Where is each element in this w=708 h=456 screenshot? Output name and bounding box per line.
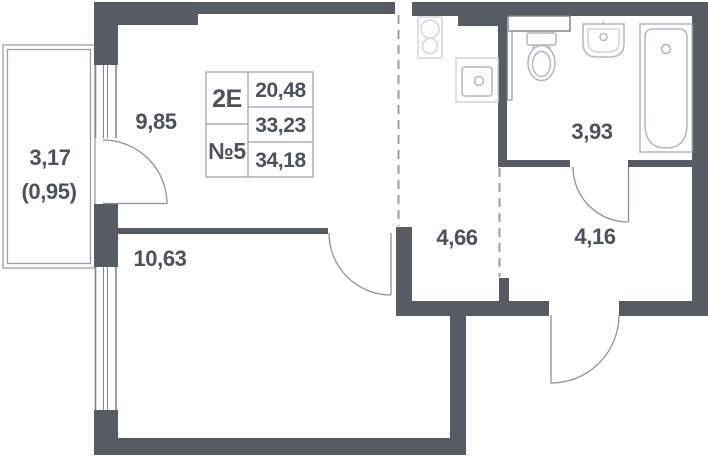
wall-top-left <box>94 2 395 14</box>
door-arc <box>573 167 628 222</box>
door-arc <box>103 140 167 204</box>
stove-icon <box>418 17 442 58</box>
door-arc <box>329 233 391 295</box>
bedroom-door <box>329 233 391 295</box>
wall-corridor-bottom <box>396 301 549 316</box>
wall-bedroom-right <box>450 301 466 438</box>
bathroom-door <box>573 167 629 222</box>
area-label-balcony-reduced: (0,95) <box>21 179 76 204</box>
entrance-door <box>551 315 619 383</box>
toilet-icon <box>527 33 556 81</box>
wall-corridor-vertical <box>396 227 412 302</box>
basin-drain <box>600 34 607 41</box>
wall-room-partition <box>118 228 328 234</box>
area-label-bathroom: 3,93 <box>571 119 612 144</box>
bathroom-liner-wall <box>508 31 513 100</box>
balcony-window <box>96 65 117 138</box>
unit-living-area: 20,48 <box>255 79 306 102</box>
unit-area-main: 33,23 <box>255 114 306 137</box>
tub-drain <box>662 45 671 54</box>
wall-bathroom-bottom-right <box>628 160 692 167</box>
kitchen-sink-icon <box>456 58 498 102</box>
wall-left-block-top <box>94 2 118 65</box>
wall-left-block-bottom <box>94 410 118 455</box>
floor-plan: 2Е №5 20,48 33,23 34,18 9,85 3,17 (0,95)… <box>0 0 708 456</box>
walls <box>94 2 708 455</box>
wall-top-kitchen-step <box>458 13 498 26</box>
area-label-bedroom: 10,63 <box>133 246 186 271</box>
sink-drain <box>475 77 484 86</box>
wall-bottom <box>94 438 466 455</box>
wall-bathroom-left <box>498 14 507 167</box>
area-label-living-kitchen: 9,85 <box>135 109 176 134</box>
wall-top-right <box>412 2 708 16</box>
unit-info-table: 2Е №5 20,48 33,23 34,18 <box>206 72 313 177</box>
wall-bathroom-bottom-left <box>507 160 570 167</box>
vent-shaft <box>508 16 570 31</box>
stove-burner <box>423 39 438 54</box>
area-label-hallway: 4,16 <box>574 224 615 249</box>
unit-type-label: 2Е <box>212 85 242 113</box>
unit-area-total: 34,18 <box>255 149 306 172</box>
bedroom-window <box>96 267 117 410</box>
wall-zone-stub <box>499 278 509 302</box>
bathtub-icon <box>640 24 692 152</box>
unit-number-label: №5 <box>208 138 246 164</box>
area-label-corridor: 4,66 <box>436 225 477 250</box>
toilet-bowl-inner <box>533 52 551 77</box>
toilet-tank <box>527 33 556 45</box>
wall-top-ledge <box>118 13 198 25</box>
door-arc <box>551 315 619 383</box>
fixtures <box>418 17 692 152</box>
wall-right <box>692 14 708 316</box>
washbasin-icon <box>583 21 624 57</box>
stove-burner <box>421 20 439 38</box>
wall-entry-right <box>619 301 708 316</box>
area-label-balcony: 3,17 <box>29 145 70 170</box>
wall-left-block-middle <box>94 204 118 267</box>
balcony-door <box>103 140 167 204</box>
